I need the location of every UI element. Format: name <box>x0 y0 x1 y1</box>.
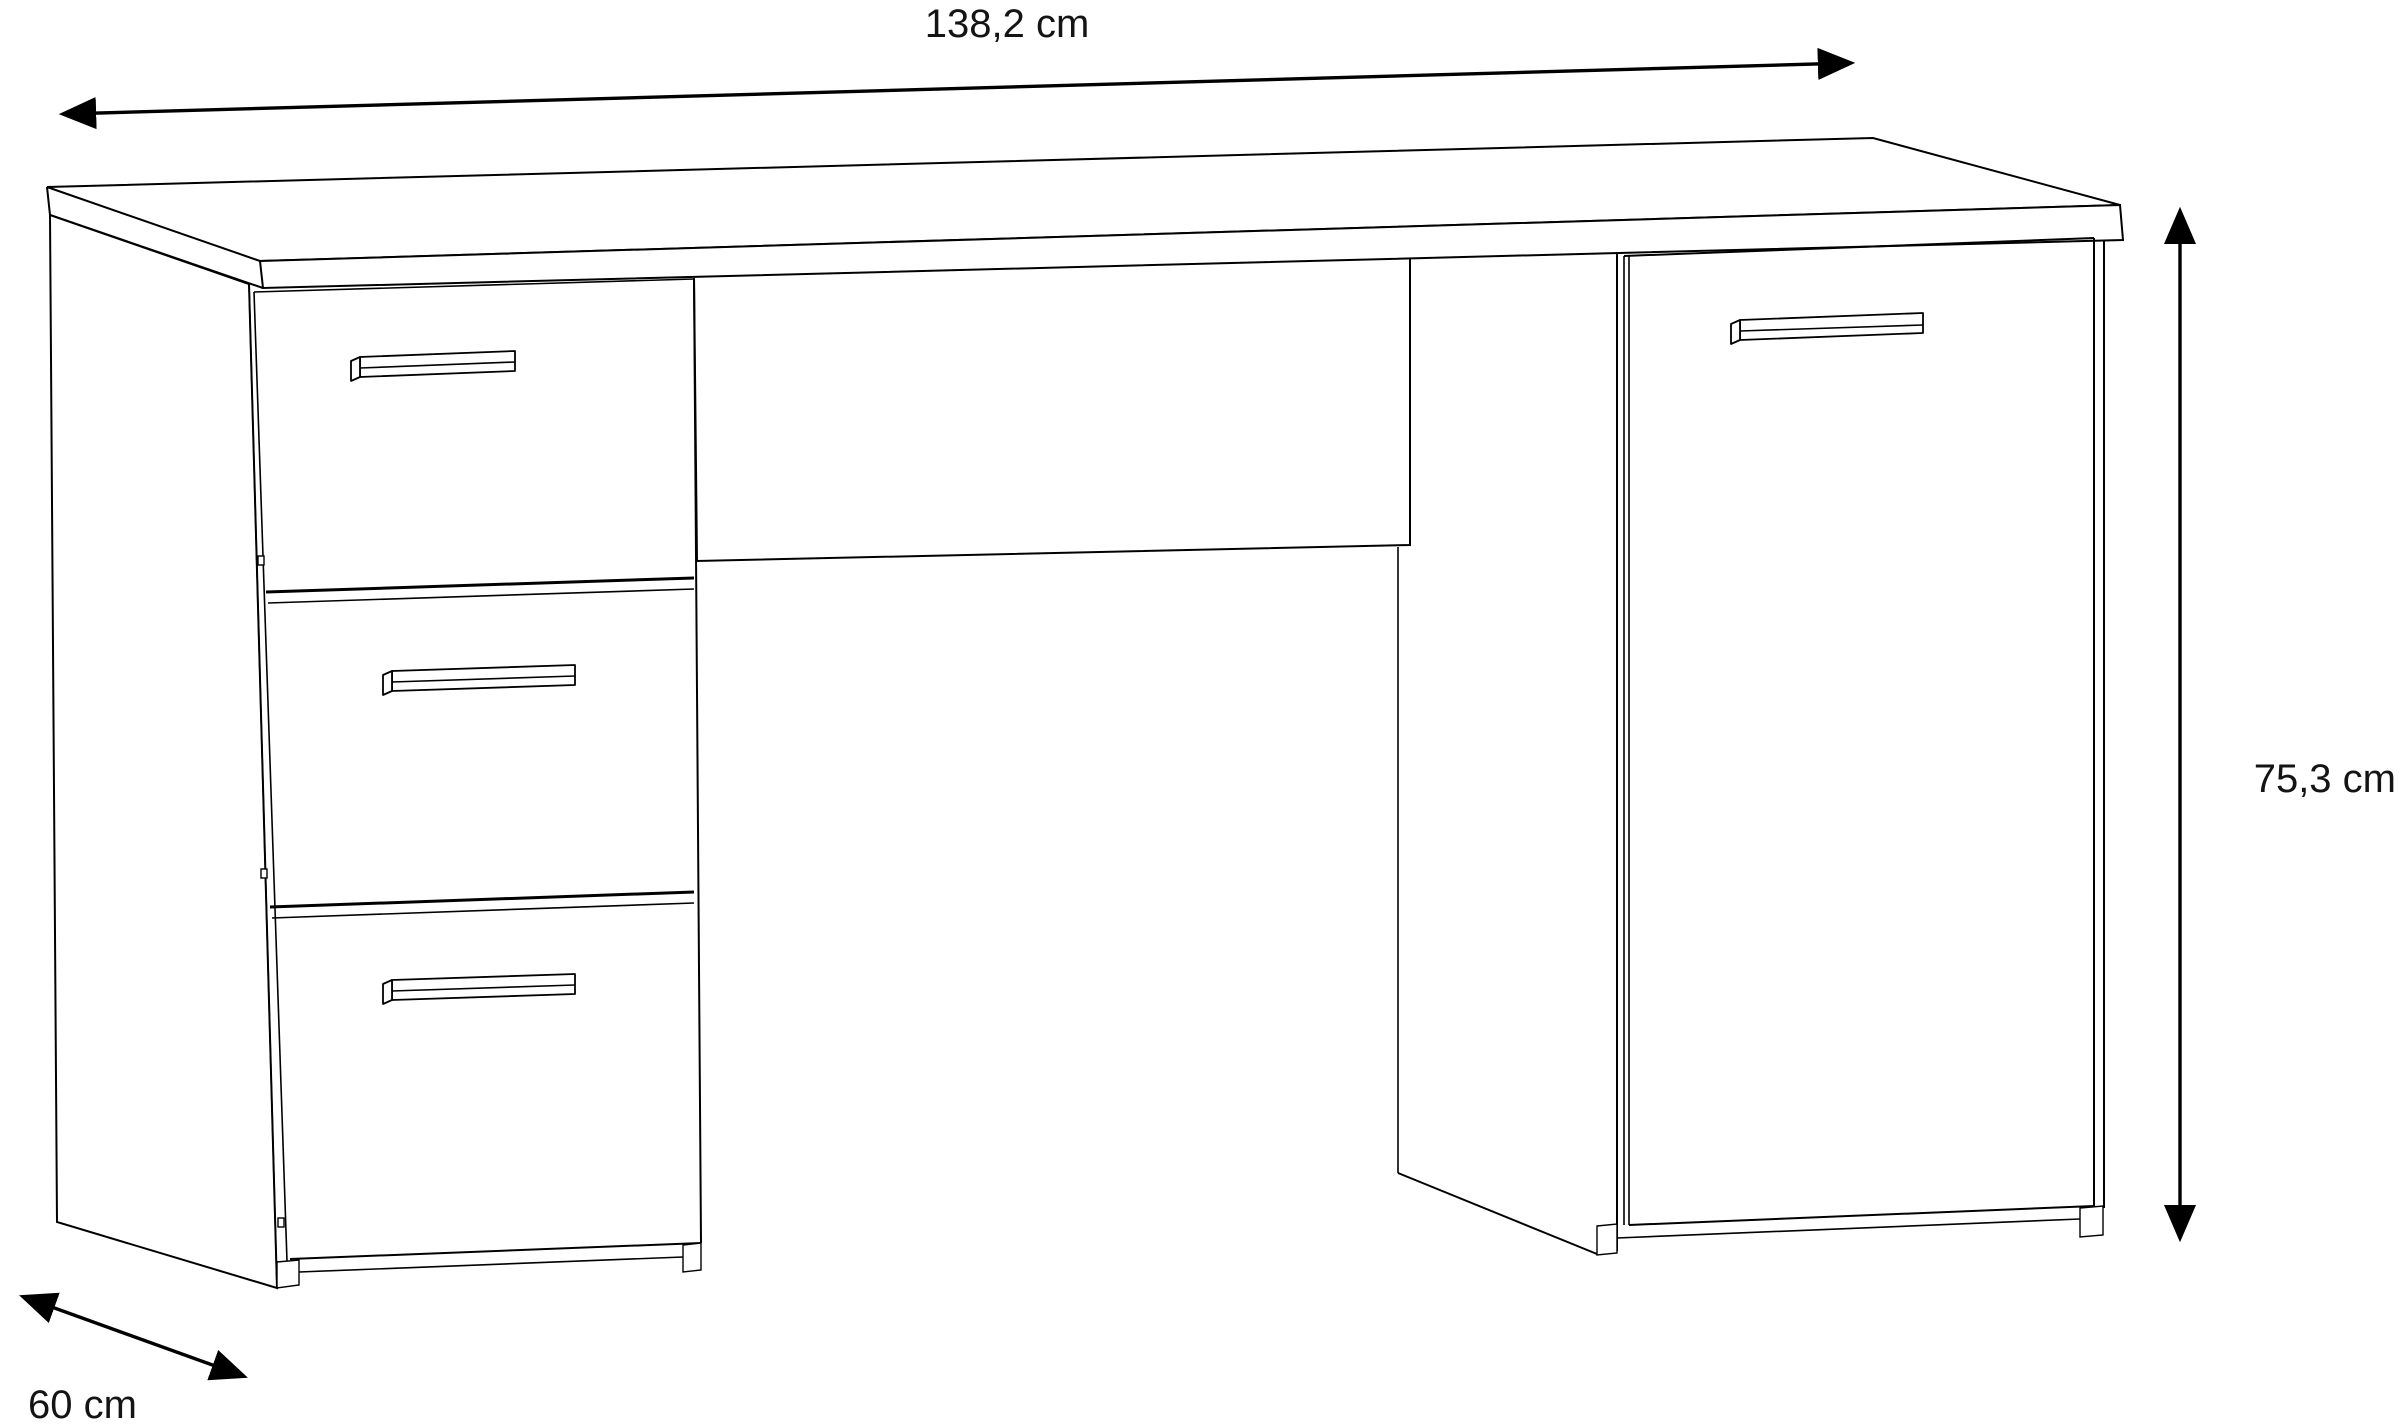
door-handle <box>1731 313 1923 344</box>
desktop <box>47 138 2123 288</box>
width-dimension: 138,2 cm <box>64 2 1850 114</box>
left-base-rail <box>299 1257 683 1272</box>
cam-mark <box>258 556 264 565</box>
drawer-1-handle <box>351 351 515 381</box>
desk-line-drawing: 138,2 cm 75,3 cm 60 cm <box>0 0 2400 1424</box>
height-dimension-label: 75,3 cm <box>2254 757 2396 801</box>
drawer-3-bottom-edge <box>290 1243 701 1259</box>
cam-mark <box>278 1218 284 1227</box>
drawer-3-handle <box>383 974 575 1004</box>
drawer-2-handle <box>383 665 575 695</box>
left-pedestal <box>50 215 701 1288</box>
width-dimension-label: 138,2 cm <box>925 2 1090 46</box>
left-side-panel <box>50 215 277 1288</box>
cam-mark <box>261 869 267 878</box>
right-back-foot <box>2080 1206 2103 1237</box>
left-front-foot <box>277 1260 299 1288</box>
drawer-gap-2 <box>270 892 694 918</box>
height-dimension: 75,3 cm <box>2180 212 2396 1237</box>
drawer-gap-1 <box>266 578 694 603</box>
door-bottom-edge <box>1629 1206 2094 1225</box>
desk-dimension-diagram-page: 138,2 cm 75,3 cm 60 cm <box>0 0 2400 1424</box>
depth-dimension: 60 cm <box>24 1297 243 1424</box>
modesty-panel <box>694 258 1410 561</box>
width-dimension-arrow <box>64 63 1850 114</box>
left-back-foot <box>683 1243 701 1272</box>
inner-panel-bottom-edge <box>1398 1173 1597 1254</box>
desk-outline <box>47 138 2123 1288</box>
depth-dimension-label: 60 cm <box>28 1383 137 1424</box>
depth-dimension-arrow <box>24 1297 243 1376</box>
right-front-foot <box>1597 1224 1617 1255</box>
right-pedestal <box>1398 238 2104 1255</box>
